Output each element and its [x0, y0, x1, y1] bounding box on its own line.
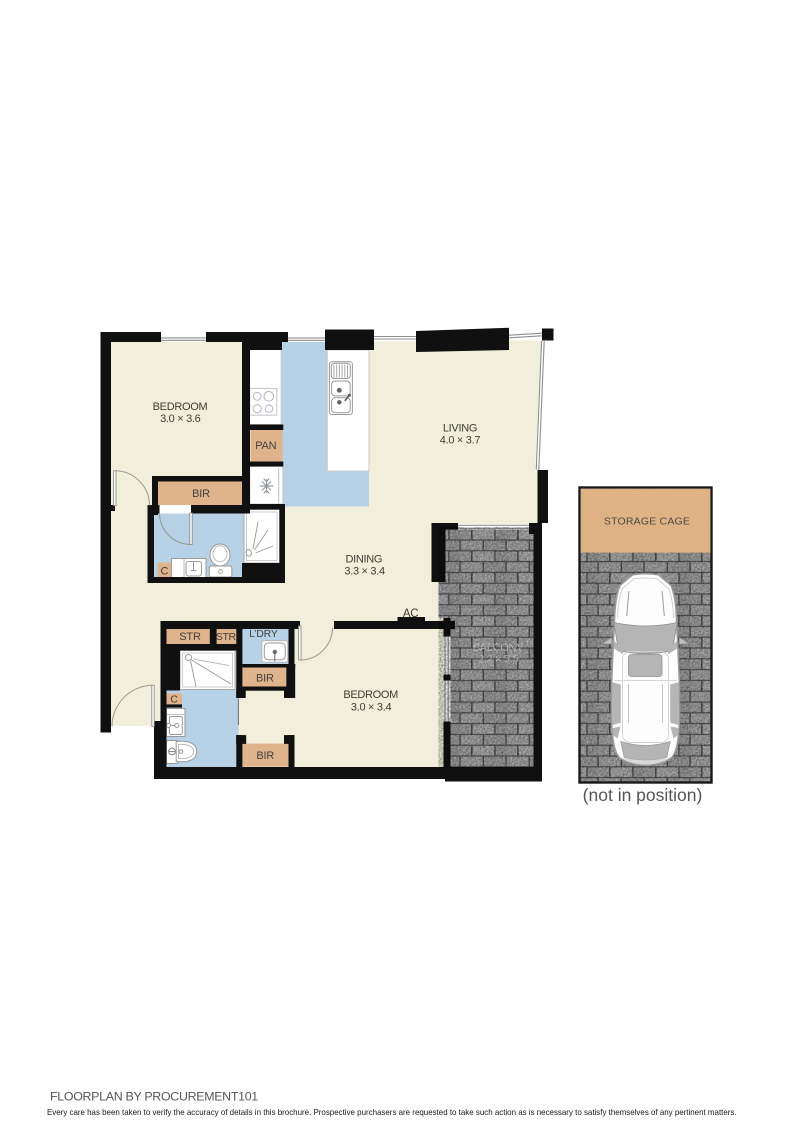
svg-text:C: C: [170, 694, 178, 706]
svg-text:STR: STR: [179, 631, 201, 643]
svg-text:STR: STR: [216, 631, 237, 643]
svg-text:BIR: BIR: [192, 488, 210, 500]
svg-text:3.0 × 3.6: 3.0 × 3.6: [160, 413, 201, 425]
svg-text:LIVING: LIVING: [443, 422, 477, 434]
svg-text:DINING: DINING: [345, 554, 382, 566]
svg-text:BEDROOM: BEDROOM: [343, 689, 398, 701]
svg-text:Every care has been taken to v: Every care has been taken to verify the …: [47, 1108, 737, 1117]
svg-text:4.0 × 3.7: 4.0 × 3.7: [440, 435, 481, 447]
svg-text:STORAGE CAGE: STORAGE CAGE: [604, 516, 690, 528]
svg-text:AC: AC: [403, 608, 418, 620]
svg-text:3.3 × 3.4: 3.3 × 3.4: [344, 565, 385, 577]
svg-text:BIR: BIR: [256, 750, 274, 762]
svg-text:PAN: PAN: [255, 440, 276, 452]
svg-text:(not in position): (not in position): [583, 785, 703, 805]
svg-text:BIR: BIR: [256, 673, 274, 685]
svg-text:BEDROOM: BEDROOM: [153, 401, 208, 413]
svg-text:L’DRY: L’DRY: [249, 628, 278, 640]
svg-text:C: C: [161, 566, 169, 578]
svg-text:3.0 × 3.4: 3.0 × 3.4: [351, 701, 392, 713]
svg-text:FLOORPLAN BY PROCUREMENT101: FLOORPLAN BY PROCUREMENT101: [50, 1090, 258, 1104]
